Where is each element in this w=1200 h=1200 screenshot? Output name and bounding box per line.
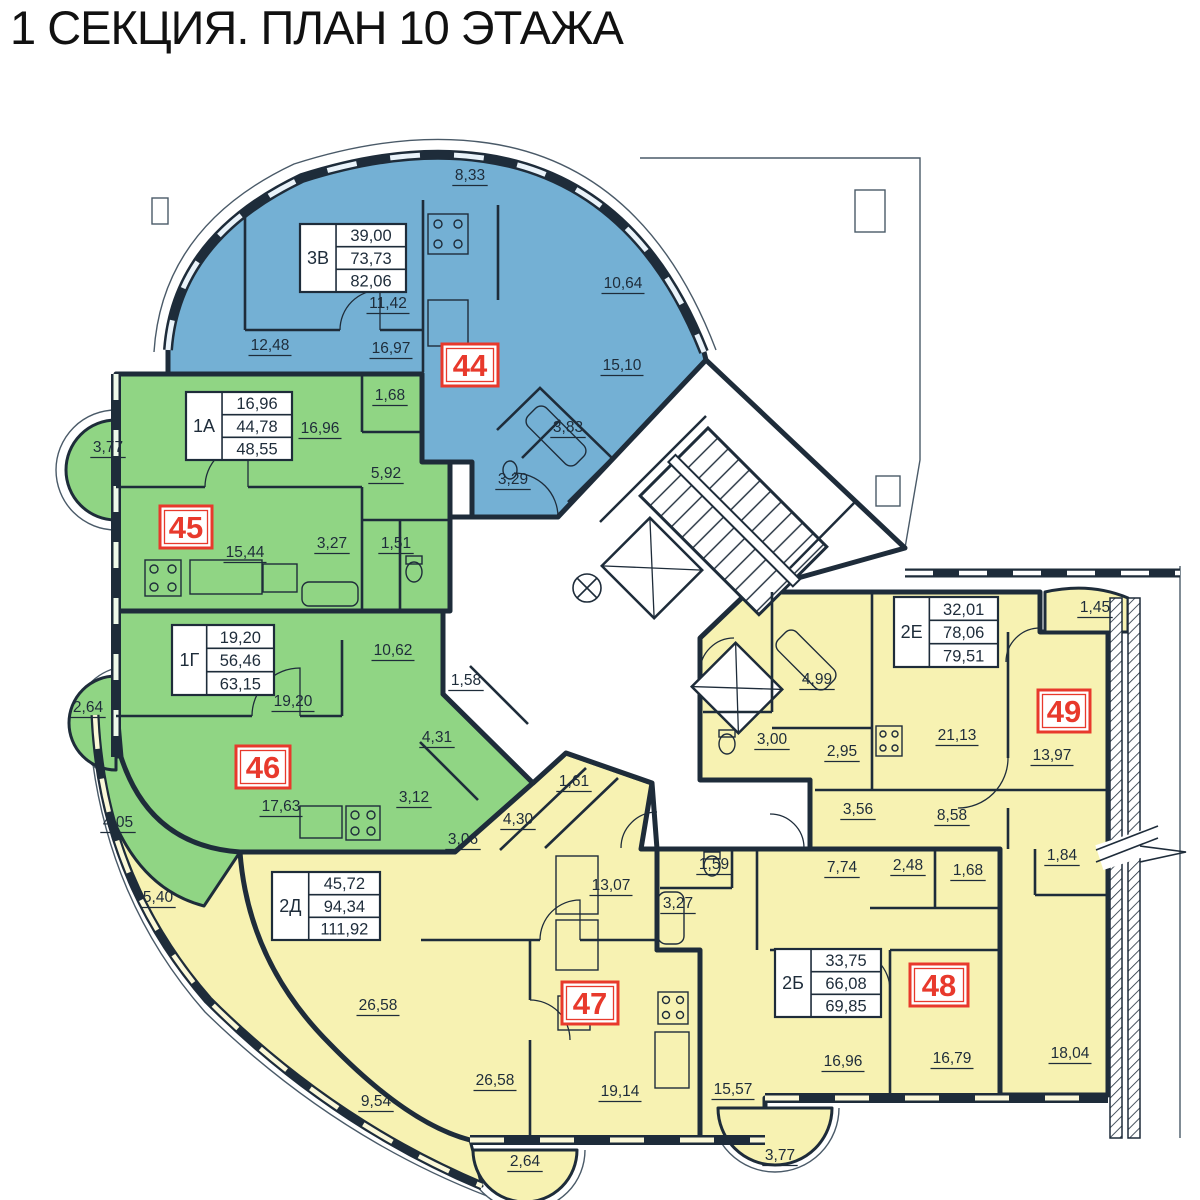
dimension-label: 3,56 [843, 801, 873, 818]
apartment-area-value: 33,75 [825, 952, 866, 970]
apartment-number: 47 [573, 986, 607, 1021]
apartment-number: 49 [1047, 694, 1081, 729]
apartment-type-label: 1А [193, 416, 215, 436]
dimension-label: 9,54 [361, 1093, 392, 1110]
apartment-type-label: 2Д [279, 896, 301, 916]
dimension-label: 16,96 [824, 1053, 863, 1070]
apartment-area-value: 66,08 [825, 975, 866, 993]
apartment-type-label: 2Е [901, 622, 923, 642]
page-title: 1 СЕКЦИЯ. ПЛАН 10 ЭТАЖА [10, 1, 624, 54]
dimension-label: 3,29 [498, 471, 528, 488]
dimension-label: 16,79 [933, 1050, 972, 1067]
dimension-label: 1,51 [381, 535, 411, 552]
dimension-label: 1,59 [699, 856, 729, 873]
apartment-area-value: 94,34 [324, 898, 365, 916]
dimension-label: 1,45 [1080, 599, 1110, 616]
floor-plan-canvas: 1 СЕКЦИЯ. ПЛАН 10 ЭТАЖА 3В39,0073,7382,0… [0, 0, 1200, 1200]
dimension-label: 4,31 [422, 729, 452, 746]
apartment-area-value: 69,85 [825, 998, 866, 1016]
dimension-label: 21,13 [938, 727, 977, 744]
dimension-label: 26,58 [359, 997, 398, 1014]
dimension-label: 16,96 [301, 420, 340, 437]
apartment-area-value: 39,00 [350, 227, 391, 245]
dimension-label: 13,97 [1033, 747, 1072, 764]
apartment-number: 44 [453, 348, 488, 383]
dimension-label: 2,48 [893, 857, 923, 874]
dimension-label: 16,97 [372, 340, 411, 357]
dimension-label: 4,99 [802, 671, 832, 688]
dimension-label: 19,20 [274, 693, 313, 710]
dimension-label: 3,00 [757, 731, 788, 748]
dimension-label: 3,77 [765, 1147, 795, 1164]
dimension-label: 2,64 [73, 699, 104, 716]
dimension-label: 15,44 [226, 544, 265, 561]
dimension-label: 8,58 [937, 807, 967, 824]
dimension-label: 4,30 [503, 811, 534, 828]
dimension-label: 2,64 [510, 1153, 541, 1170]
apartment-area-value: 16,96 [236, 395, 277, 413]
dimension-label: 5,92 [371, 465, 401, 482]
apartment-type-label: 2Б [782, 973, 804, 993]
apartment-area-value: 79,51 [943, 648, 984, 666]
dimension-label: 3,12 [399, 789, 429, 806]
dimension-label: 3,83 [553, 419, 583, 436]
apartment-area-value: 48,55 [236, 441, 277, 459]
dimension-label: 1,68 [375, 387, 405, 404]
dimension-label: 3,77 [93, 439, 123, 456]
dimension-label: 1,58 [451, 672, 481, 689]
dimension-label: 11,42 [369, 295, 407, 312]
dimension-label: 5,40 [143, 889, 174, 906]
dimension-label: 10,64 [604, 275, 643, 292]
dimension-label: 4,05 [103, 814, 133, 831]
dimension-label: 18,04 [1051, 1045, 1090, 1062]
dimension-label: 10,62 [374, 642, 413, 659]
dimension-label: 3,27 [663, 895, 693, 912]
apartment-area-value: 78,06 [943, 624, 984, 642]
apartment-area-value: 19,20 [220, 629, 261, 647]
apartment-type-label: 3В [307, 248, 329, 268]
floor-plan-page: 1 СЕКЦИЯ. ПЛАН 10 ЭТАЖА 3В39,0073,7382,0… [0, 0, 1200, 1200]
dimension-label: 1,84 [1047, 847, 1078, 864]
dimension-label: 15,57 [714, 1081, 753, 1098]
dimension-label: 2,95 [827, 743, 857, 760]
dimension-label: 12,48 [251, 337, 290, 354]
dimension-label: 3,27 [317, 535, 347, 552]
apartment-number: 46 [246, 750, 280, 785]
apartment-number: 48 [922, 968, 956, 1003]
apartment-area-value: 44,78 [236, 418, 277, 436]
apartment-area-value: 45,72 [324, 875, 365, 893]
dimension-label: 15,10 [603, 357, 642, 374]
apartment-type-label: 1Г [179, 650, 199, 670]
apartment-area-value: 111,92 [320, 921, 368, 939]
dimension-label: 13,07 [592, 877, 631, 894]
dimension-label: 19,14 [601, 1083, 640, 1100]
dimension-label: 7,74 [827, 859, 858, 876]
dimension-label: 26,58 [476, 1072, 515, 1089]
apartment-area-value: 56,46 [220, 652, 261, 670]
dimension-label: 8,33 [455, 167, 485, 184]
dimension-label: 3,06 [448, 831, 478, 848]
apartment-area-value: 63,15 [220, 676, 261, 694]
dimension-label: 17,63 [262, 798, 301, 815]
apartment-number: 45 [169, 510, 203, 545]
apartment-area-value: 82,06 [350, 273, 391, 291]
dimension-label: 1,61 [559, 773, 589, 790]
apartment-area-value: 73,73 [350, 250, 391, 268]
apartment-area-value: 32,01 [943, 601, 984, 619]
dimension-label: 1,68 [953, 862, 983, 879]
